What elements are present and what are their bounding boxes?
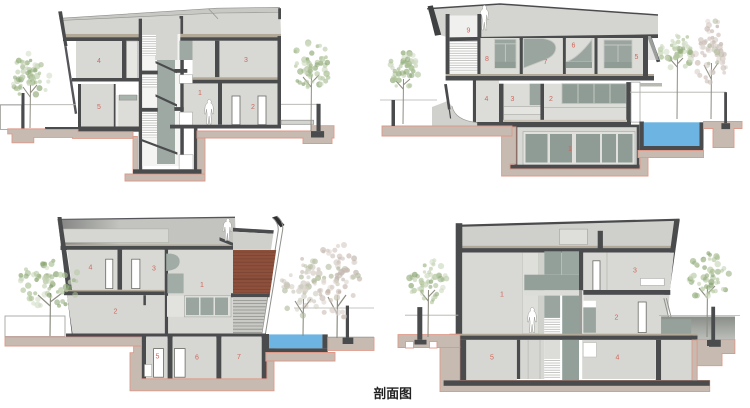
svg-text:5: 5 [97,104,101,111]
svg-text:4: 4 [485,96,489,103]
svg-text:4: 4 [616,355,620,362]
svg-text:剖面图: 剖面图 [374,386,412,401]
svg-text:7: 7 [237,354,241,361]
svg-text:4: 4 [97,58,101,65]
svg-text:6: 6 [195,355,199,362]
svg-text:5: 5 [156,354,160,361]
svg-text:9: 9 [467,28,471,35]
svg-text:8: 8 [485,56,489,63]
svg-text:5: 5 [635,54,639,61]
svg-text:3: 3 [244,57,248,64]
svg-text:1: 1 [568,146,572,153]
svg-text:1: 1 [200,282,204,289]
svg-text:2: 2 [114,309,118,316]
svg-text:2: 2 [251,104,255,111]
svg-text:6: 6 [572,43,576,50]
svg-text:4: 4 [89,265,93,272]
svg-text:1: 1 [198,90,202,97]
svg-text:3: 3 [633,268,637,275]
svg-text:3: 3 [152,266,156,273]
svg-text:2: 2 [549,96,553,103]
svg-text:1: 1 [500,292,504,299]
svg-text:7: 7 [544,59,548,66]
svg-text:3: 3 [511,96,515,103]
svg-text:5: 5 [490,355,494,362]
svg-text:2: 2 [615,315,619,322]
